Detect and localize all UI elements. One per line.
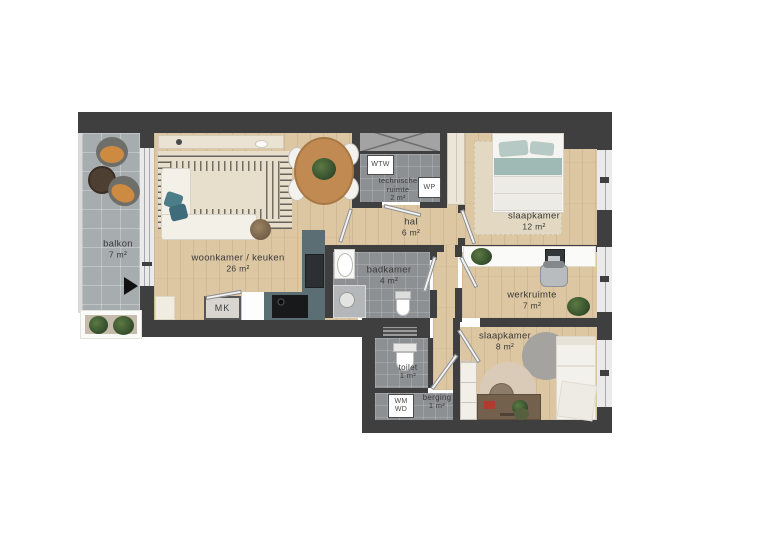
wall-workroom-left-top <box>455 245 462 257</box>
planter-plant <box>113 316 134 335</box>
room-label-slaapkamer-1: slaapkamer 12 m² <box>508 210 560 231</box>
wall-bedroom2-top <box>480 318 597 327</box>
table-plant <box>312 158 336 180</box>
floor-plant <box>567 297 590 316</box>
mk-label: MK <box>215 303 231 313</box>
room-name: balkon <box>103 238 133 249</box>
room-name: ruimte <box>379 186 418 195</box>
facade-wall-bottom <box>140 286 154 320</box>
bed-headboard <box>557 337 595 345</box>
wall-toilet-storage <box>375 388 428 393</box>
chair-cushion <box>108 180 137 206</box>
floor-plan: MK <box>0 0 768 543</box>
facade-wall-top <box>140 133 154 148</box>
wall-bedroom2-top-left <box>453 318 460 327</box>
room-area: 12 m² <box>508 222 560 232</box>
bedroom1-bed <box>492 133 564 213</box>
bedroom2-wardrobe <box>460 361 477 420</box>
room-label-toilet: toilet 1 m² <box>399 363 418 381</box>
desk-chair <box>540 264 568 287</box>
room-name: badkamer <box>367 264 412 275</box>
room-area: 6 m² <box>402 228 420 238</box>
room-label-slaapkamer-2: slaapkamer 8 m² <box>479 330 531 351</box>
vent-grille <box>383 327 417 336</box>
room-area: 1 m² <box>423 402 452 411</box>
outer-wall-bottom-left <box>140 320 375 337</box>
room-area: 4 m² <box>367 276 412 286</box>
wall-tech-right <box>440 128 447 205</box>
wtw-unit: WTW <box>367 155 394 175</box>
balcony-chair <box>96 137 128 167</box>
shower <box>333 285 366 318</box>
room-label-werkruimte: werkruimte 7 m² <box>507 289 556 310</box>
toilet-tank <box>393 343 417 352</box>
bed-seam <box>557 365 595 367</box>
room-area: 2 m² <box>379 195 418 203</box>
wall-workroom-left-bottom <box>455 288 462 322</box>
shaft-bottom-wall <box>360 151 440 154</box>
balcony-door-handle <box>142 262 152 266</box>
fridge <box>242 292 264 320</box>
room-area: 7 m² <box>507 301 556 311</box>
outer-wall-top <box>78 112 612 133</box>
living-rug-center <box>184 171 266 209</box>
wall-tech-bottom-right <box>420 202 447 208</box>
wall-bathroom-right-bottom <box>430 290 437 318</box>
wall-toilet-right <box>428 338 433 388</box>
room-name: hal <box>402 216 420 227</box>
wd-label: WD <box>395 406 407 414</box>
pillow <box>529 141 554 156</box>
chair-cushion <box>100 146 124 163</box>
window-frame-nub <box>600 177 609 183</box>
chair-back <box>543 261 565 268</box>
room-label-berging: berging 1 m² <box>423 393 452 411</box>
room-label-technische-ruimte: technische ruimte 2 m² <box>379 177 418 203</box>
bedroom2-bed <box>556 336 596 420</box>
window-frame-nub <box>600 276 609 282</box>
planter-plant <box>89 316 108 334</box>
room-name: werkruimte <box>507 289 556 300</box>
sideboard <box>158 135 284 149</box>
basket <box>250 219 271 240</box>
toilet-bowl <box>396 299 410 316</box>
wall-storage-bedroom2 <box>453 322 460 420</box>
bathroom-sink <box>334 249 355 279</box>
outer-wall-bottom-right <box>362 420 612 433</box>
room-name: woonkamer / keuken <box>191 252 284 263</box>
pillow <box>498 140 528 157</box>
room-label-hal: hal 6 m² <box>402 216 420 237</box>
wall-bathroom-left <box>325 245 333 318</box>
room-label-woonkamer: woonkamer / keuken 26 m² <box>191 252 284 273</box>
room-name: slaapkamer <box>508 210 560 221</box>
desk-plant <box>471 248 492 265</box>
planter-box <box>80 310 142 339</box>
wtw-label: WTW <box>371 161 389 169</box>
wall-tech-bottom-left <box>352 202 382 208</box>
wp-unit: WP <box>418 177 441 198</box>
bed-sheet <box>494 175 562 211</box>
wm-label: WM <box>394 398 407 406</box>
closet-divider <box>456 133 457 202</box>
door-mat <box>155 296 175 320</box>
window-frame-nub <box>600 370 609 376</box>
room-label-balkon: balkon 7 m² <box>103 238 133 259</box>
toilet-tank <box>395 291 411 299</box>
room-area: 8 m² <box>479 342 531 352</box>
pouf <box>514 408 529 420</box>
wm-wd-unit: WM WD <box>388 394 414 418</box>
bed-blanket <box>494 158 562 175</box>
entrance-arrow-icon <box>124 277 138 295</box>
decor-dish <box>255 140 268 148</box>
room-name: slaapkamer <box>479 330 531 341</box>
bed-blanket-crumpled <box>557 381 598 422</box>
room-area: 7 m² <box>103 250 133 260</box>
sink-basin <box>337 253 353 277</box>
balcony-railing <box>78 133 82 313</box>
hall-closet <box>447 130 465 205</box>
room-area: 1 m² <box>399 372 418 381</box>
bedroom2-desk <box>477 394 541 420</box>
room-area: 26 m² <box>191 264 284 274</box>
mk-cabinet: MK <box>204 296 241 320</box>
wp-label: WP <box>424 184 436 192</box>
oven <box>305 254 324 288</box>
shower-head <box>339 292 355 308</box>
bathroom-toilet <box>395 291 411 317</box>
decor-bowl <box>176 139 182 145</box>
cooktop <box>272 295 308 318</box>
desk-books <box>484 401 495 409</box>
room-label-badkamer: badkamer 4 m² <box>367 264 412 285</box>
